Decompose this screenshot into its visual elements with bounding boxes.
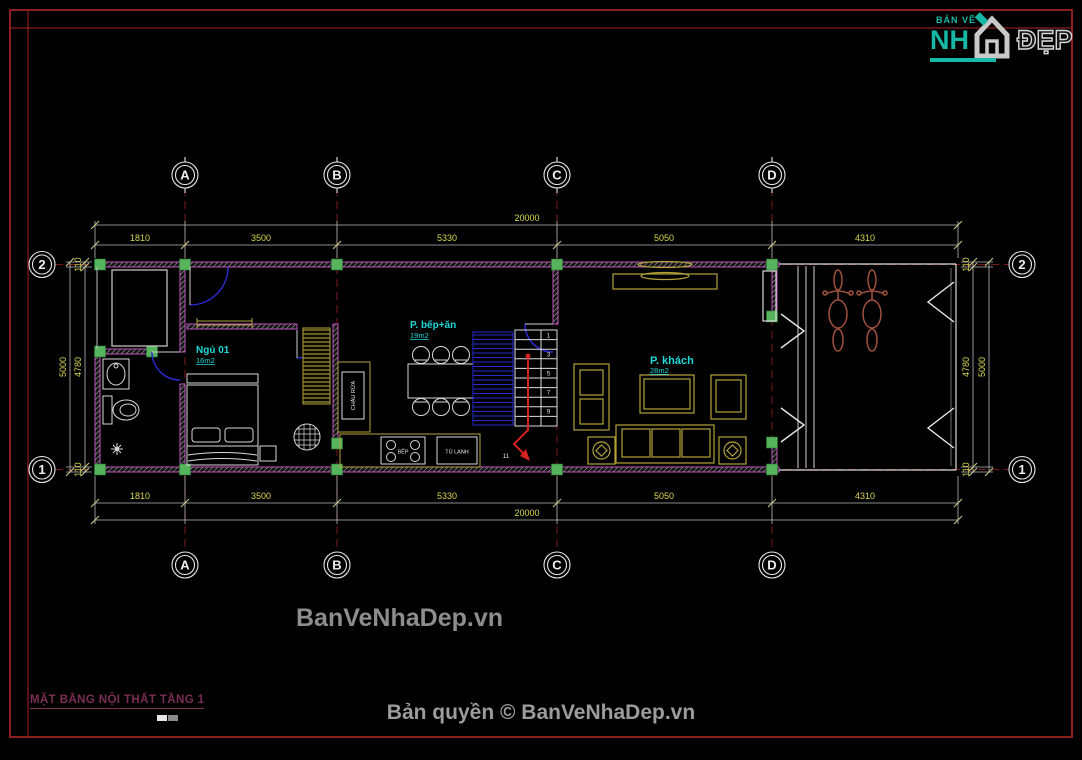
garage bbox=[779, 264, 956, 470]
stove-label: BẾP bbox=[397, 449, 408, 456]
room-area-living: 28m2 bbox=[650, 366, 669, 375]
room-label-kitchen: P. bếp+ăn bbox=[410, 319, 456, 331]
void-patio bbox=[97, 267, 167, 349]
logo-nh-text: NH bbox=[930, 25, 969, 56]
coffee-table bbox=[640, 375, 694, 413]
room-area-bedroom: 16m2 bbox=[196, 356, 215, 365]
dim-top-4: 5050 bbox=[654, 233, 674, 243]
pillow bbox=[192, 428, 220, 442]
axis-label-D-top: D bbox=[767, 168, 776, 183]
dim-bottom-5: 4310 bbox=[855, 491, 875, 501]
floor-plan-drawing: A B C D A B C D 2 1 2 1 bbox=[0, 0, 1082, 760]
bed-shelf bbox=[187, 374, 258, 383]
axis-label-D-bottom: D bbox=[767, 558, 776, 573]
room-label-bedroom: Ngủ 01 bbox=[196, 345, 230, 356]
bathroom bbox=[103, 359, 139, 455]
dining-set bbox=[408, 347, 474, 416]
axis-label-A-bottom: A bbox=[180, 558, 190, 573]
axis-label-2-right: 2 bbox=[1018, 257, 1025, 272]
logo-underline bbox=[930, 58, 996, 62]
dim-bottom-2: 3500 bbox=[251, 491, 271, 501]
cad-sheet: A B C D A B C D 2 1 2 1 bbox=[0, 0, 1082, 760]
dim-bottom-total: 20000 bbox=[514, 508, 539, 518]
fridge-label: TỦ LẠNH bbox=[445, 449, 469, 456]
side-table-left bbox=[588, 437, 615, 464]
axis-label-B-bottom: B bbox=[332, 558, 341, 573]
kitchen: CHẬU RỬA BẾP TỦ LẠNH bbox=[338, 347, 480, 468]
dim-top-3: 5330 bbox=[437, 233, 457, 243]
dim-right-110-top: 110 bbox=[961, 257, 971, 271]
toilet-icon bbox=[103, 396, 139, 424]
columns bbox=[95, 259, 778, 475]
dim-right-4780: 4780 bbox=[961, 357, 971, 377]
dim-right-total: 5000 bbox=[977, 357, 987, 377]
dim-left-110-bottom: 110 bbox=[73, 462, 83, 476]
site-logo: BẢN VẼ NH ĐẸP bbox=[928, 12, 1076, 74]
armchair bbox=[711, 375, 746, 419]
axis-label-1-left: 1 bbox=[38, 462, 45, 477]
dim-bottom-3: 5330 bbox=[437, 491, 457, 501]
svg-text:1: 1 bbox=[547, 334, 551, 340]
axis-label-B-top: B bbox=[332, 168, 341, 183]
dim-left-total: 5000 bbox=[58, 357, 68, 377]
axis-label-A-top: A bbox=[180, 168, 190, 183]
svg-text:9: 9 bbox=[547, 410, 551, 416]
bedside-table bbox=[294, 424, 320, 450]
logo-house-icon bbox=[970, 12, 1014, 62]
motorbike-icon-1 bbox=[823, 270, 853, 351]
door-corridor bbox=[190, 267, 228, 305]
tv-cabinet bbox=[613, 274, 717, 289]
motorbike-icon-2 bbox=[857, 270, 887, 351]
dim-bottom-4: 5050 bbox=[654, 491, 674, 501]
svg-text:11: 11 bbox=[503, 454, 510, 460]
axis-label-C-top: C bbox=[552, 168, 562, 183]
logo-dep-text: ĐẸP bbox=[1017, 25, 1073, 56]
gate-tracks bbox=[798, 266, 814, 468]
stair-treads bbox=[515, 330, 557, 426]
room-area-kitchen: 19m2 bbox=[410, 331, 429, 340]
axis-label-2-left: 2 bbox=[38, 257, 45, 272]
loveseat bbox=[574, 364, 609, 430]
pillow bbox=[225, 428, 253, 442]
dim-top-total: 20000 bbox=[514, 213, 539, 223]
dim-top-1: 1810 bbox=[130, 233, 150, 243]
bedroom-furniture bbox=[187, 374, 320, 465]
stair-flight-hatch bbox=[473, 332, 513, 425]
watermark: BanVeNhaDep.vn bbox=[296, 604, 503, 633]
svg-text:3: 3 bbox=[547, 353, 551, 359]
wardrobe bbox=[303, 328, 330, 404]
svg-text:7: 7 bbox=[547, 391, 551, 397]
bedside-mat bbox=[260, 446, 276, 461]
sink-label: CHẬU RỬA bbox=[350, 380, 357, 410]
sofa bbox=[616, 425, 714, 463]
copyright-text: Bản quyền © BanVeNhaDep.vn bbox=[0, 701, 1082, 725]
floor-drain-icon bbox=[111, 443, 123, 455]
dim-bottom-1: 1810 bbox=[130, 491, 150, 501]
dim-right-110-bottom: 110 bbox=[961, 462, 971, 476]
dim-top-2: 3500 bbox=[251, 233, 271, 243]
axis-label-1-right: 1 bbox=[1018, 462, 1025, 477]
dim-top-5: 4310 bbox=[855, 233, 875, 243]
side-table-right bbox=[719, 437, 746, 464]
dim-left-4780: 4780 bbox=[73, 357, 83, 377]
axis-label-C-bottom: C bbox=[552, 558, 562, 573]
svg-text:5: 5 bbox=[547, 372, 551, 378]
dim-left-110-top: 110 bbox=[73, 257, 83, 271]
swing-doors bbox=[781, 282, 954, 448]
stairs: 1 3 5 7 9 11 bbox=[473, 330, 557, 461]
sink-icon bbox=[103, 359, 129, 389]
